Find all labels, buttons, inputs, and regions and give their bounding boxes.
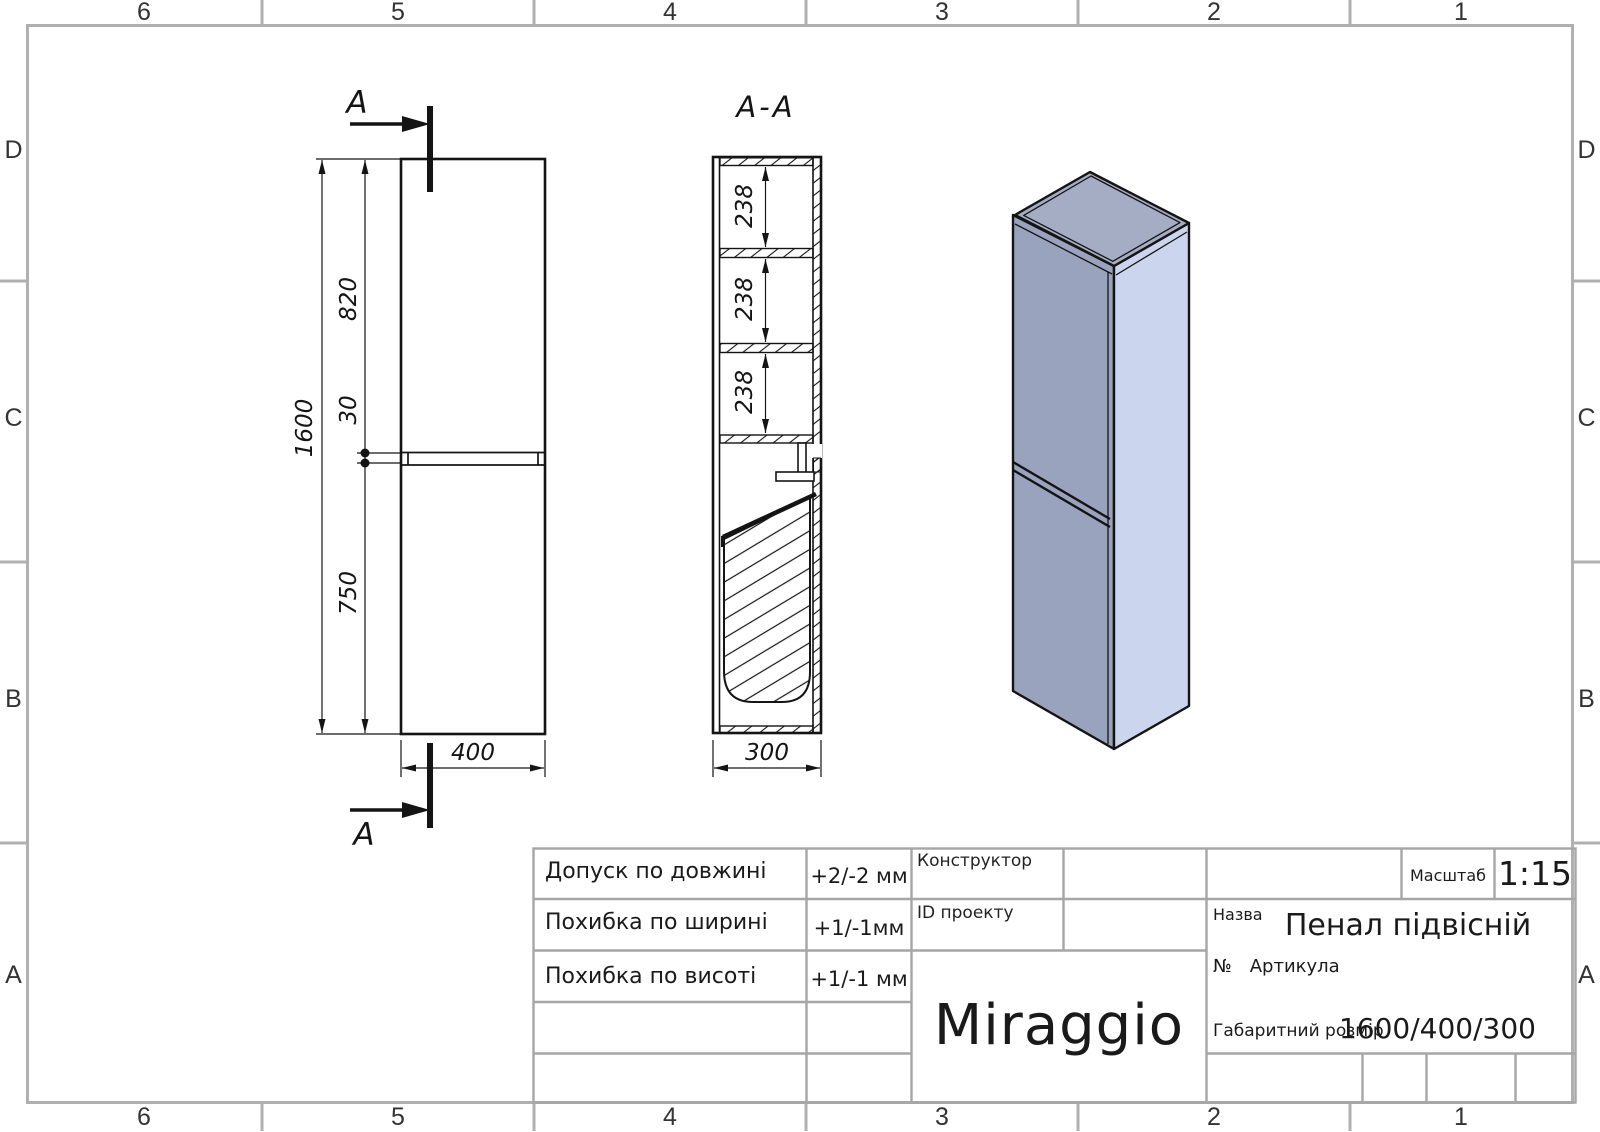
shelf-1 [720,249,813,258]
wall-slot [812,444,823,458]
constructor-label: Конструктор [917,851,1032,871]
project-id-label: ID проекту [917,903,1014,923]
zone-col-top-1: 1 [1439,0,1483,27]
zone-col-top-5: 5 [376,0,420,27]
cut-label-top: A [344,85,367,121]
zone-col-top-2: 2 [1192,0,1236,27]
dim-238-3: 238 [732,370,758,414]
zone-col-bottom-2: 2 [1192,1103,1236,1132]
zone-row-left-a: A [0,961,27,990]
shelf-2 [720,344,813,353]
zone-row-right-d: D [1573,136,1600,165]
dim-300: 300 [745,740,789,766]
dim-820: 820 [336,277,362,321]
zone-col-bottom-4: 4 [648,1103,692,1132]
tolerance-width-label: Похибка по ширині [545,910,768,935]
zone-row-left-c: C [0,404,27,433]
front-view-outline [401,159,545,734]
overall-size-value: 1600/400/300 [1330,1012,1545,1045]
dim-1600: 1600 [292,399,318,458]
scale-label: Масштаб [1401,866,1495,885]
tolerance-height-value: +1/-1 мм [806,967,912,991]
tolerance-height-label: Похибка по висоті [545,964,756,989]
scale-value: 1:15 [1494,857,1576,890]
zone-row-left-b: B [0,685,27,714]
iso-side-face [1114,223,1189,749]
bottom-panel [720,726,813,733]
zone-col-top-6: 6 [122,0,166,27]
article-row: №Артикула [1213,956,1340,977]
name-label: Назва [1213,905,1263,924]
section-view [713,157,822,733]
drawing-sheet: 1600 820 30 750 400 A A A-A [0,0,1600,1131]
dim-750: 750 [336,571,362,615]
zone-row-right-a: A [1573,961,1600,990]
rail-block [814,458,821,472]
zone-col-bottom-6: 6 [122,1103,166,1132]
cut-label-bottom: A [351,817,374,853]
zone-col-top-4: 4 [648,0,692,27]
tolerance-width-value: +1/-1мм [806,916,912,940]
hanging-bracket-vertical [798,443,806,475]
iso-front-face [1013,215,1114,749]
product-name: Пенал підвісній [1260,908,1556,943]
dim-238-2: 238 [732,277,758,321]
hanging-bracket-flange [776,472,814,481]
tolerance-length-value: +2/-2 мм [806,864,912,888]
drawing-canvas: 1600 820 30 750 400 A A A-A [0,0,1600,1131]
shelf-3 [720,435,813,443]
section-view-title: A-A [734,90,795,124]
article-label: Артикула [1250,956,1340,977]
isometric-view [1013,172,1189,749]
brand-logo: Miraggio [911,998,1207,1054]
zone-col-bottom-1: 1 [1439,1103,1483,1132]
dim-30: 30 [336,395,362,424]
zone-row-right-c: C [1573,404,1600,433]
tolerance-length-label: Допуск по довжині [545,859,767,884]
top-panel [720,158,813,166]
zone-col-bottom-3: 3 [920,1103,964,1132]
zone-row-left-d: D [0,136,27,165]
article-prefix: № [1213,956,1232,977]
dim-238-1: 238 [732,184,758,228]
dim-400: 400 [451,740,495,766]
zone-col-top-3: 3 [920,0,964,27]
zone-row-right-b: B [1573,685,1600,714]
front-view [401,159,545,734]
zone-col-bottom-5: 5 [376,1103,420,1132]
